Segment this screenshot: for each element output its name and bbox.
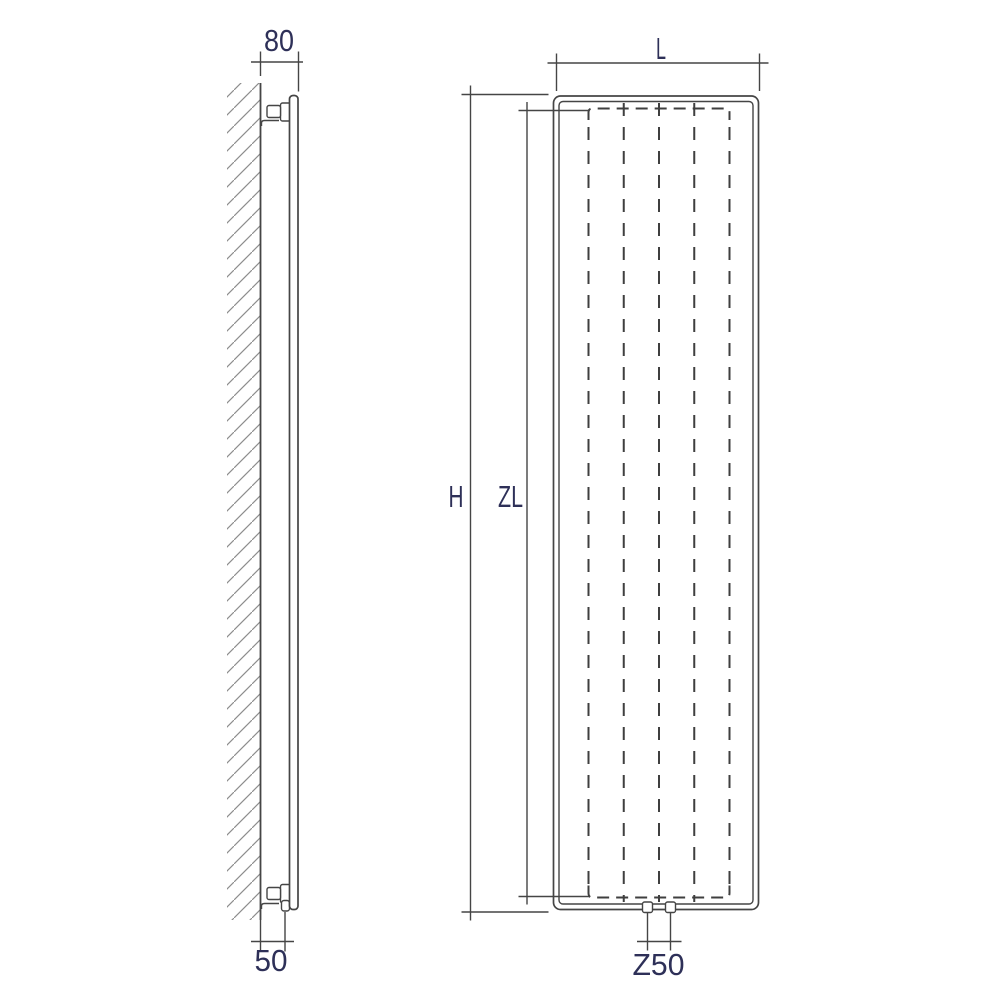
dimension-overall-width: L: [548, 31, 769, 91]
bracket-arm: [262, 121, 280, 127]
overall-height-dimension-label: H: [449, 479, 464, 514]
radiator-panel-side: [290, 96, 299, 910]
bracket-block: [267, 106, 281, 118]
connection-spacing-dimension-label: Z50: [633, 947, 685, 982]
overall-width-dimension-label: L: [656, 31, 666, 66]
connection-stub-right: [666, 902, 676, 913]
dimension-connection-spacing: Z50: [633, 913, 685, 982]
element-height-dimension-label: ZL: [498, 479, 523, 514]
connection-stub-left: [643, 902, 653, 913]
wall-to-connection-dimension-label: 50: [255, 943, 288, 978]
diagram-canvas: 80 50: [0, 0, 1000, 1000]
radiator-front-outline: [554, 96, 759, 910]
dimension-depth: 80: [251, 23, 303, 92]
dimension-wall-to-connection: 50: [251, 912, 294, 978]
pipe-connection-stub: [282, 901, 290, 912]
radiator-dimension-diagram: 80 50: [0, 0, 1000, 1000]
mounting-bracket-top: [262, 103, 291, 126]
wall-hatch: [227, 83, 261, 920]
side-view: 80 50: [227, 23, 303, 978]
mounting-bracket-bottom: [262, 885, 291, 912]
depth-dimension-label: 80: [264, 23, 294, 58]
front-view: H ZL L Z50: [449, 31, 769, 982]
bracket-block: [267, 888, 281, 900]
bracket-arm: [262, 904, 280, 910]
